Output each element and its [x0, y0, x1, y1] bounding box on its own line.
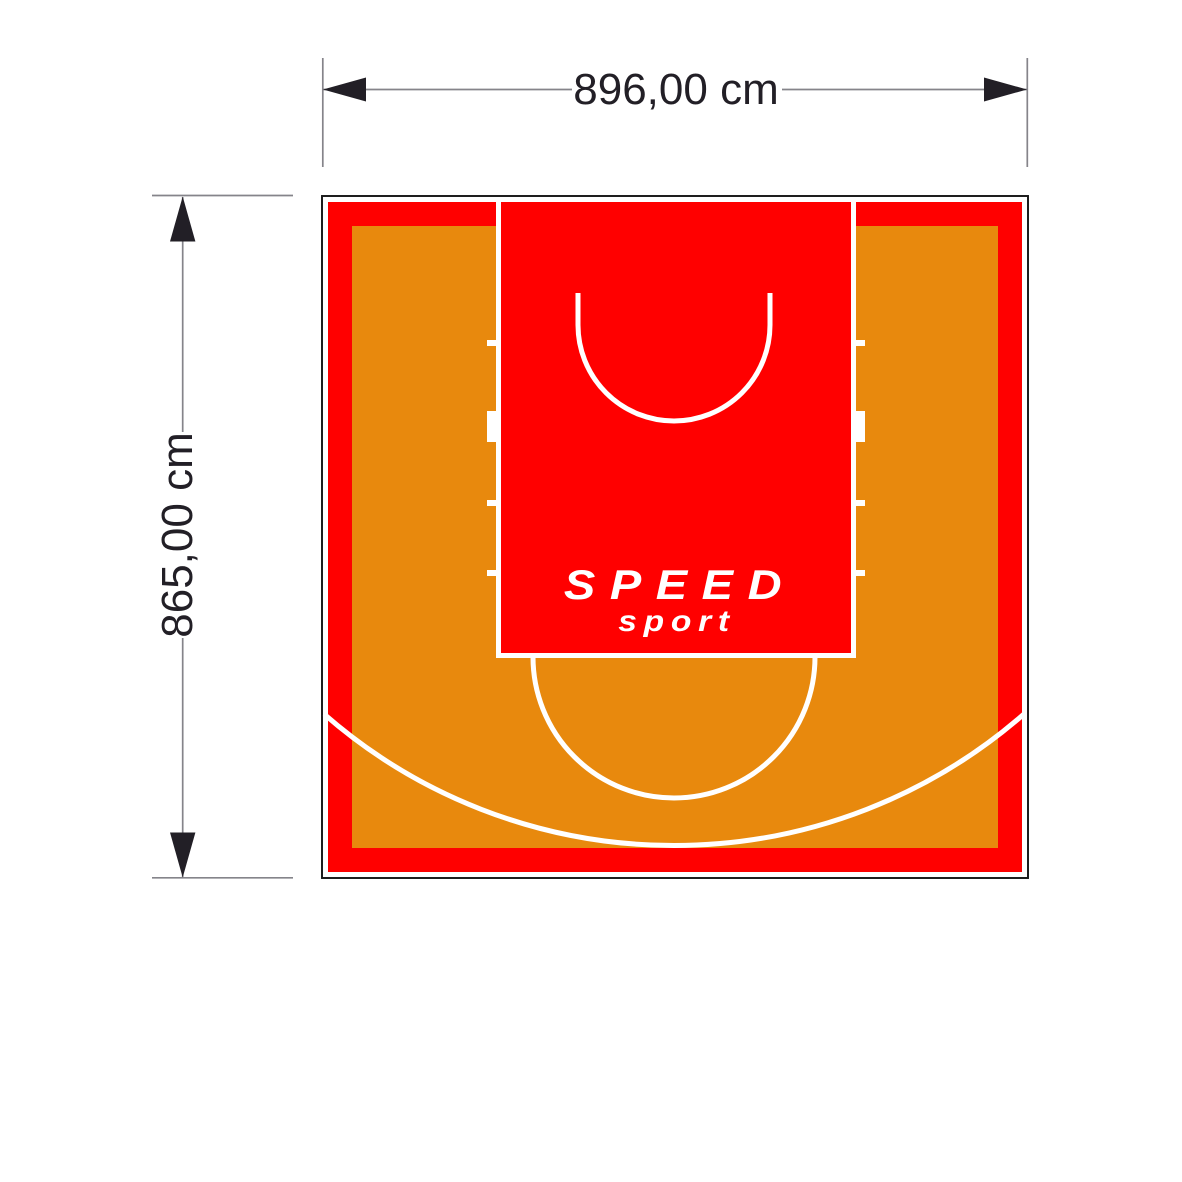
width-arrow-right [984, 78, 1027, 102]
lane-marker-right-2 [856, 500, 865, 506]
free-throw-line [496, 653, 856, 658]
court-plan-canvas: SPEED sport 896,00 cm 865,00 cm [0, 0, 1182, 1182]
lane-marker-left-1 [487, 340, 496, 346]
logo-speed: SPEED [564, 562, 796, 608]
logo-sport: sport [618, 604, 736, 638]
height-arrow-bottom [170, 833, 195, 878]
lane-marker-left-2 [487, 500, 496, 506]
lane-line-right [851, 202, 856, 658]
lane-marker-left-block [487, 411, 496, 442]
lane-marker-left-3 [487, 570, 496, 576]
width-arrow-left [323, 78, 366, 102]
height-dimension-label: 865,00 cm [153, 432, 202, 637]
lane-line-left [496, 202, 501, 658]
lane-marker-right-3 [856, 570, 865, 576]
lane-marker-right-1 [856, 340, 865, 346]
court-plan: SPEED sport [322, 196, 1028, 878]
lane-marker-right-block [856, 411, 865, 442]
height-arrow-top [170, 197, 195, 242]
width-dimension-label: 896,00 cm [573, 65, 778, 114]
